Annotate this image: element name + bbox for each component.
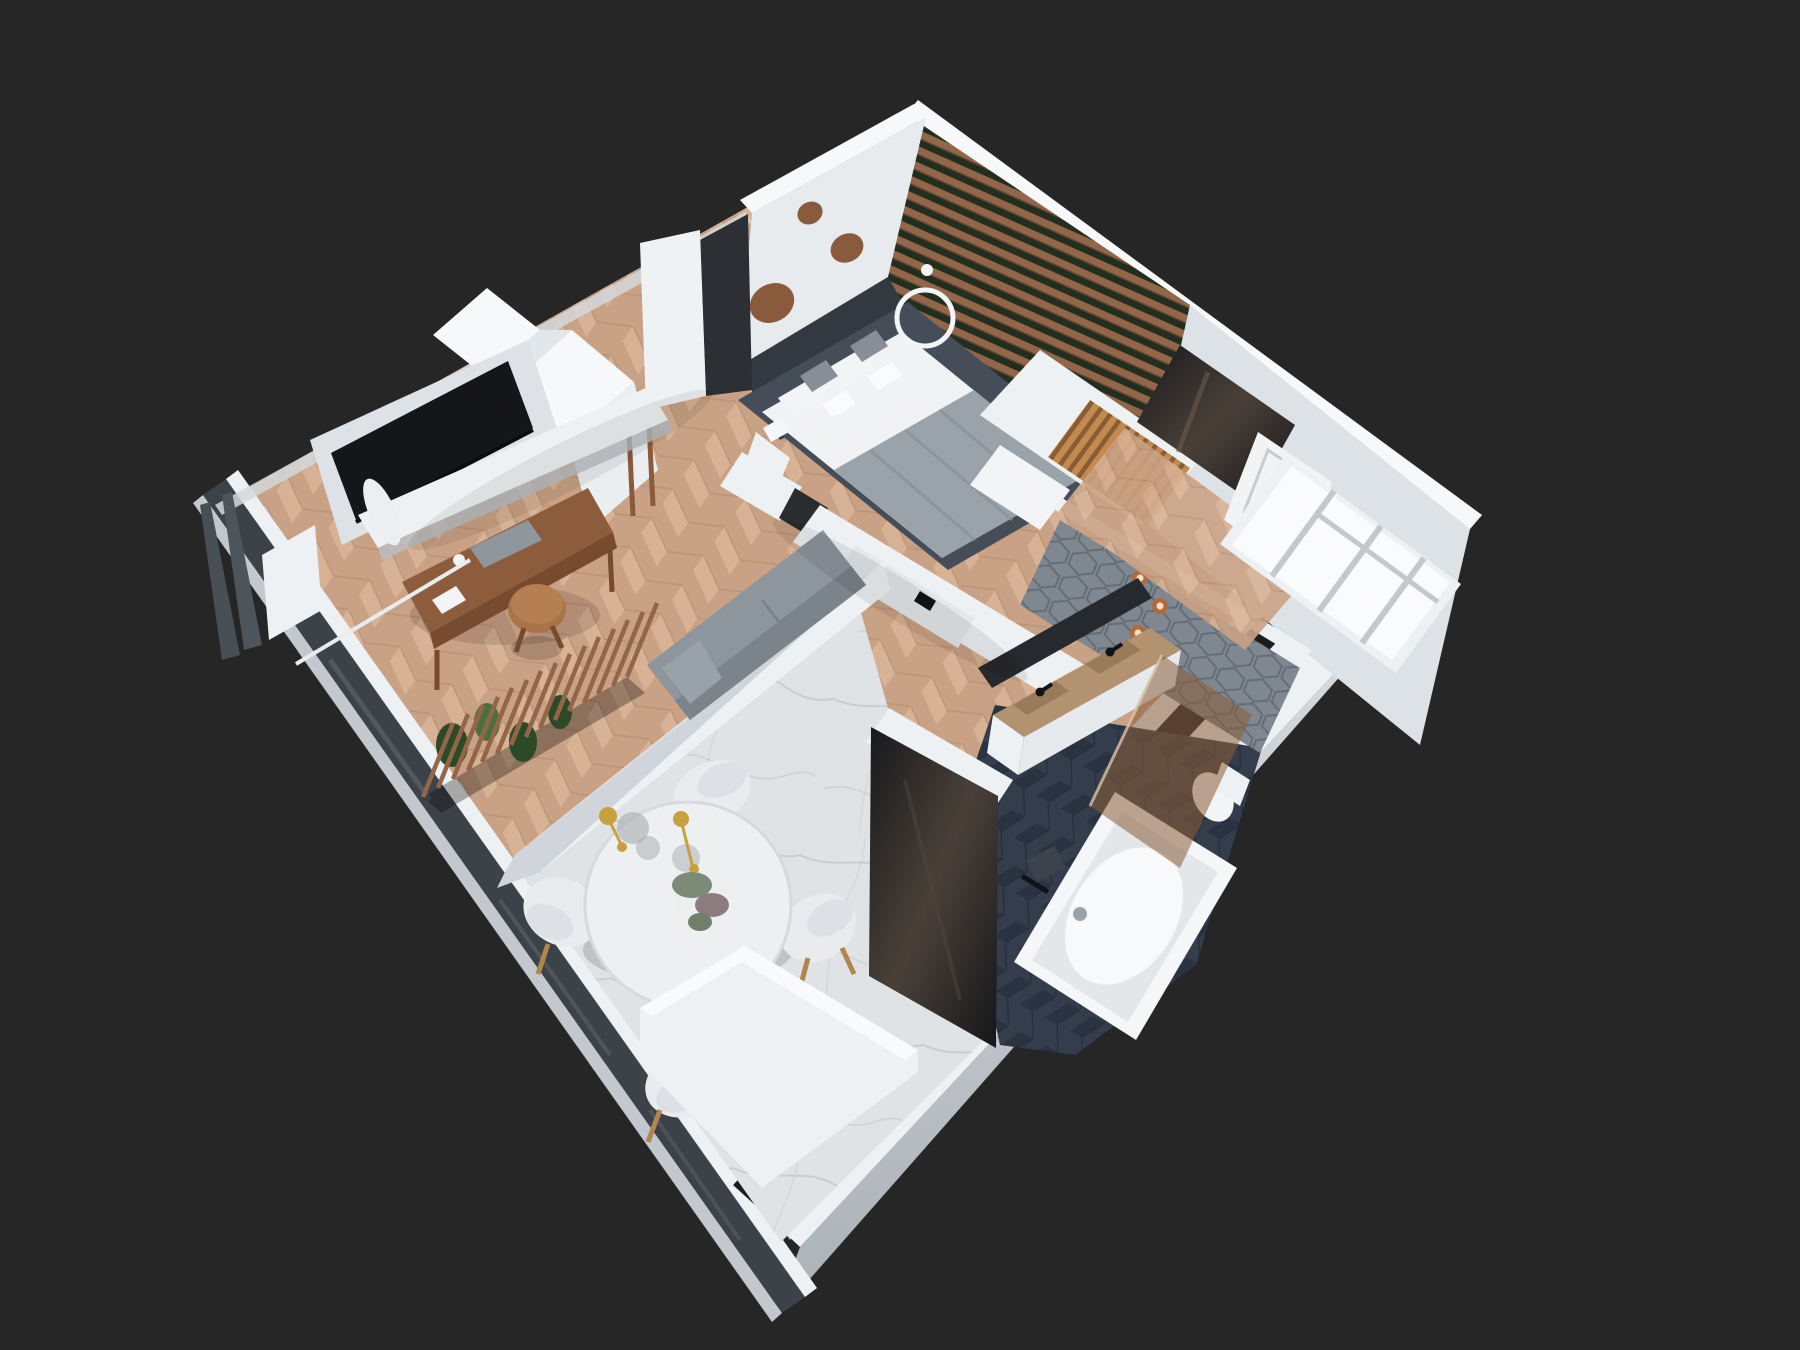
render-canvas	[0, 0, 1800, 1350]
floorplan-render	[0, 0, 1800, 1350]
ceiling-light-dot	[921, 264, 933, 276]
tub-drain	[1073, 907, 1087, 921]
gold-pendant	[673, 811, 689, 827]
round-stool	[508, 584, 566, 660]
gold-pendant	[599, 807, 617, 825]
glass-bubble	[636, 836, 660, 860]
wardrobe-column	[640, 230, 706, 410]
wall-gap-shadow	[700, 214, 752, 396]
